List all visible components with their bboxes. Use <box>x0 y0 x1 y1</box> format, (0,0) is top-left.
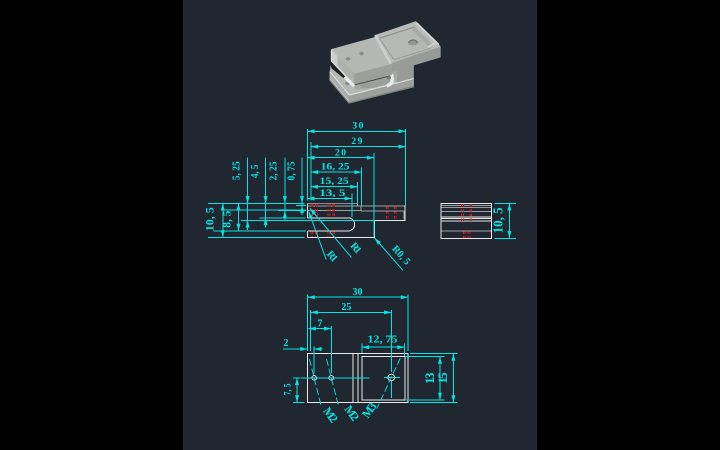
svg-text:7, 5: 7, 5 <box>284 383 294 395</box>
svg-text:15, 25: 15, 25 <box>320 177 349 187</box>
svg-text:29: 29 <box>351 137 362 147</box>
svg-text:7: 7 <box>317 318 322 329</box>
svg-text:12, 75: 12, 75 <box>368 335 398 346</box>
svg-text:5, 25: 5, 25 <box>231 161 243 180</box>
svg-text:25: 25 <box>341 302 351 313</box>
svg-text:4, 5: 4, 5 <box>249 164 261 178</box>
svg-text:16, 25: 16, 25 <box>321 163 350 173</box>
svg-text:10, 5: 10, 5 <box>491 207 506 233</box>
svg-text:20: 20 <box>335 148 346 158</box>
svg-text:13, 5: 13, 5 <box>319 189 345 199</box>
svg-text:15: 15 <box>435 372 450 384</box>
svg-text:8, 5: 8, 5 <box>219 211 233 228</box>
svg-text:2, 25: 2, 25 <box>267 161 279 180</box>
svg-text:2: 2 <box>284 338 289 349</box>
svg-text:0, 75: 0, 75 <box>286 161 298 180</box>
svg-text:30: 30 <box>353 287 363 298</box>
svg-text:10, 5: 10, 5 <box>203 207 217 231</box>
svg-text:30: 30 <box>352 122 363 132</box>
